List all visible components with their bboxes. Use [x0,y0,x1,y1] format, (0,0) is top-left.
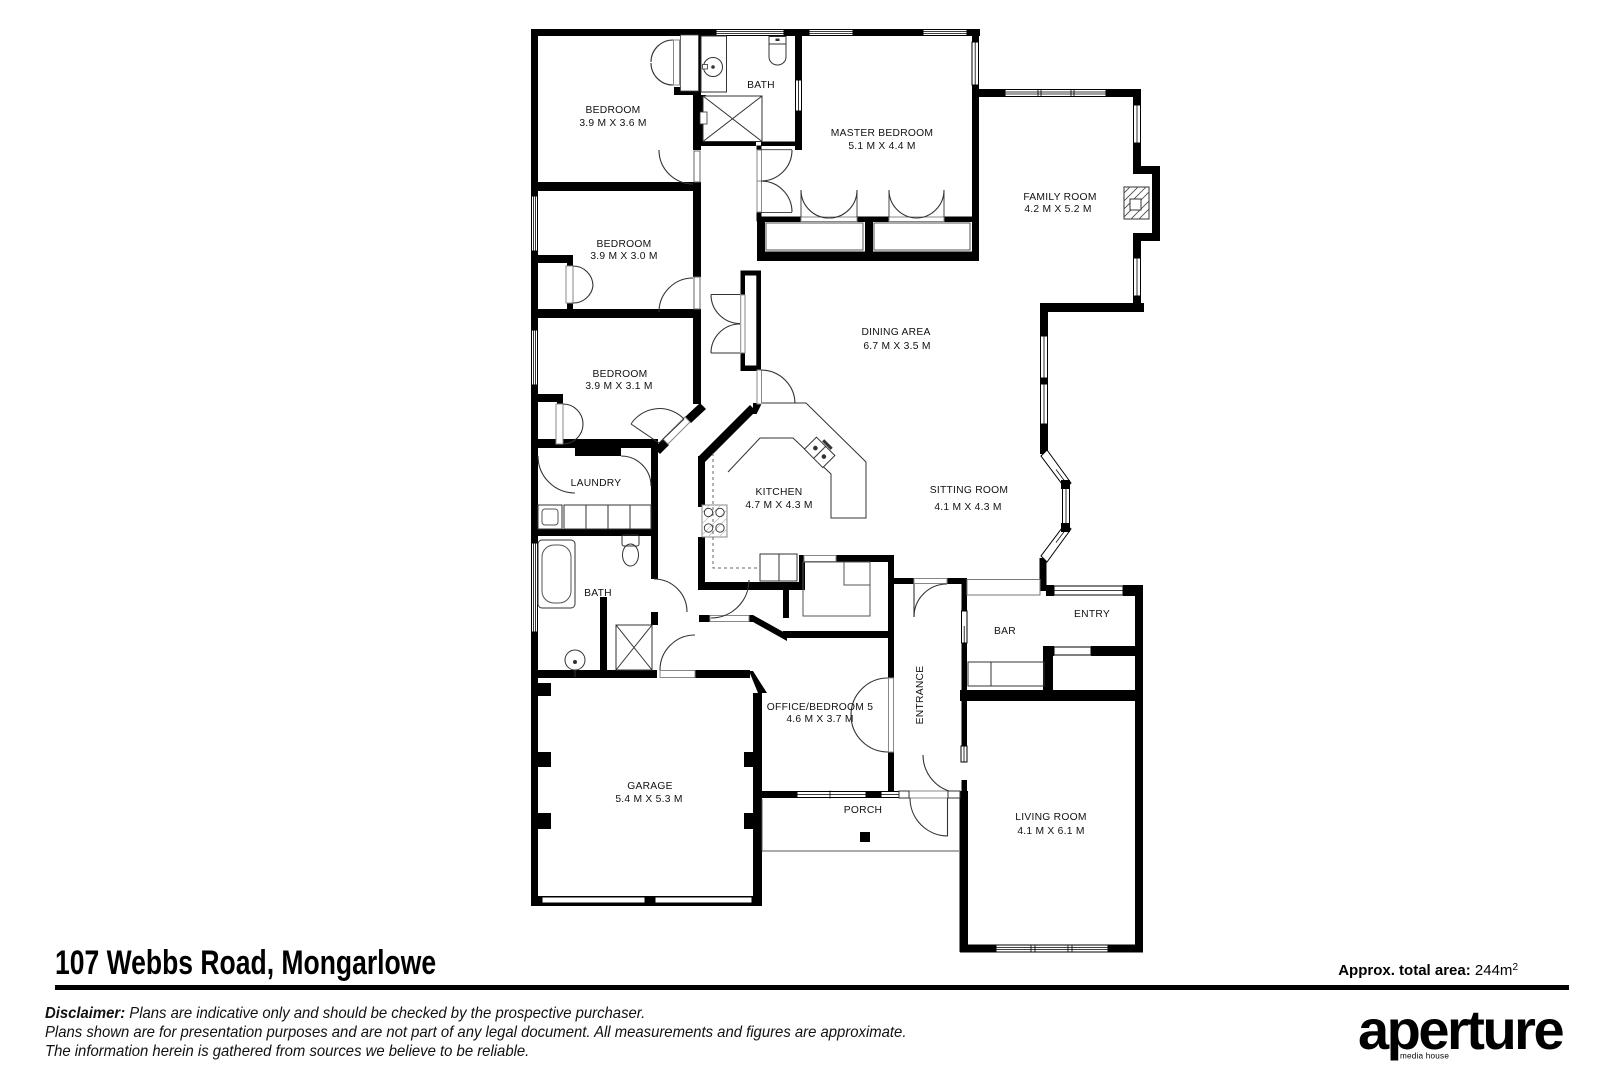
svg-text:BEDROOM: BEDROOM [593,369,648,380]
svg-text:BEDROOM: BEDROOM [597,239,652,250]
svg-text:6.7 M X 3.5 M: 6.7 M X 3.5 M [863,341,930,352]
svg-text:3.9 M X 3.0 M: 3.9 M X 3.0 M [590,251,657,262]
svg-text:MASTER BEDROOM: MASTER BEDROOM [831,128,933,139]
svg-text:5.4 M X 5.3 M: 5.4 M X 5.3 M [615,794,682,805]
svg-text:GARAGE: GARAGE [627,781,673,792]
svg-text:LAUNDRY: LAUNDRY [571,478,622,489]
svg-text:4.1 M X 4.3 M: 4.1 M X 4.3 M [934,502,1001,513]
svg-text:DINING AREA: DINING AREA [861,327,930,338]
svg-text:FAMILY ROOM: FAMILY ROOM [1023,192,1096,203]
svg-text:The information herein is gath: The information herein is gathered from … [45,1043,529,1061]
svg-text:Plans shown are for presentati: Plans shown are for presentation purpose… [45,1024,906,1042]
svg-text:BAR: BAR [994,626,1016,637]
svg-text:KITCHEN: KITCHEN [756,487,803,498]
svg-text:Disclaimer: Plans are indicati: Disclaimer: Plans are indicative only an… [45,1005,645,1023]
svg-text:Approx. total area: 244m2: Approx. total area: 244m2 [1338,962,1518,979]
svg-text:media house: media house [1400,1052,1449,1061]
svg-text:SITTING ROOM: SITTING ROOM [930,485,1009,496]
svg-text:107 Webbs Road, Mongarlowe: 107 Webbs Road, Mongarlowe [55,944,436,982]
svg-text:4.6 M X 3.7 M: 4.6 M X 3.7 M [786,714,853,725]
svg-text:ENTRY: ENTRY [1074,609,1110,620]
svg-text:BATH: BATH [747,80,775,91]
svg-text:BATH: BATH [584,588,612,599]
svg-text:BEDROOM: BEDROOM [586,105,641,116]
svg-text:5.1 M X 4.4 M: 5.1 M X 4.4 M [848,141,915,152]
svg-text:4.1 M X 6.1 M: 4.1 M X 6.1 M [1017,826,1084,837]
svg-text:3.9 M X 3.6 M: 3.9 M X 3.6 M [579,118,646,129]
svg-text:ENTRANCE: ENTRANCE [915,666,926,725]
svg-text:OFFICE/BEDROOM 5: OFFICE/BEDROOM 5 [767,702,873,713]
svg-text:PORCH: PORCH [844,805,882,816]
svg-text:LIVING ROOM: LIVING ROOM [1015,812,1086,823]
svg-text:4.2 M X 5.2 M: 4.2 M X 5.2 M [1024,204,1091,215]
svg-text:4.7 M X 4.3 M: 4.7 M X 4.3 M [745,500,812,511]
svg-text:3.9 M X 3.1 M: 3.9 M X 3.1 M [585,381,652,392]
svg-text:aperture: aperture [1358,998,1563,1061]
